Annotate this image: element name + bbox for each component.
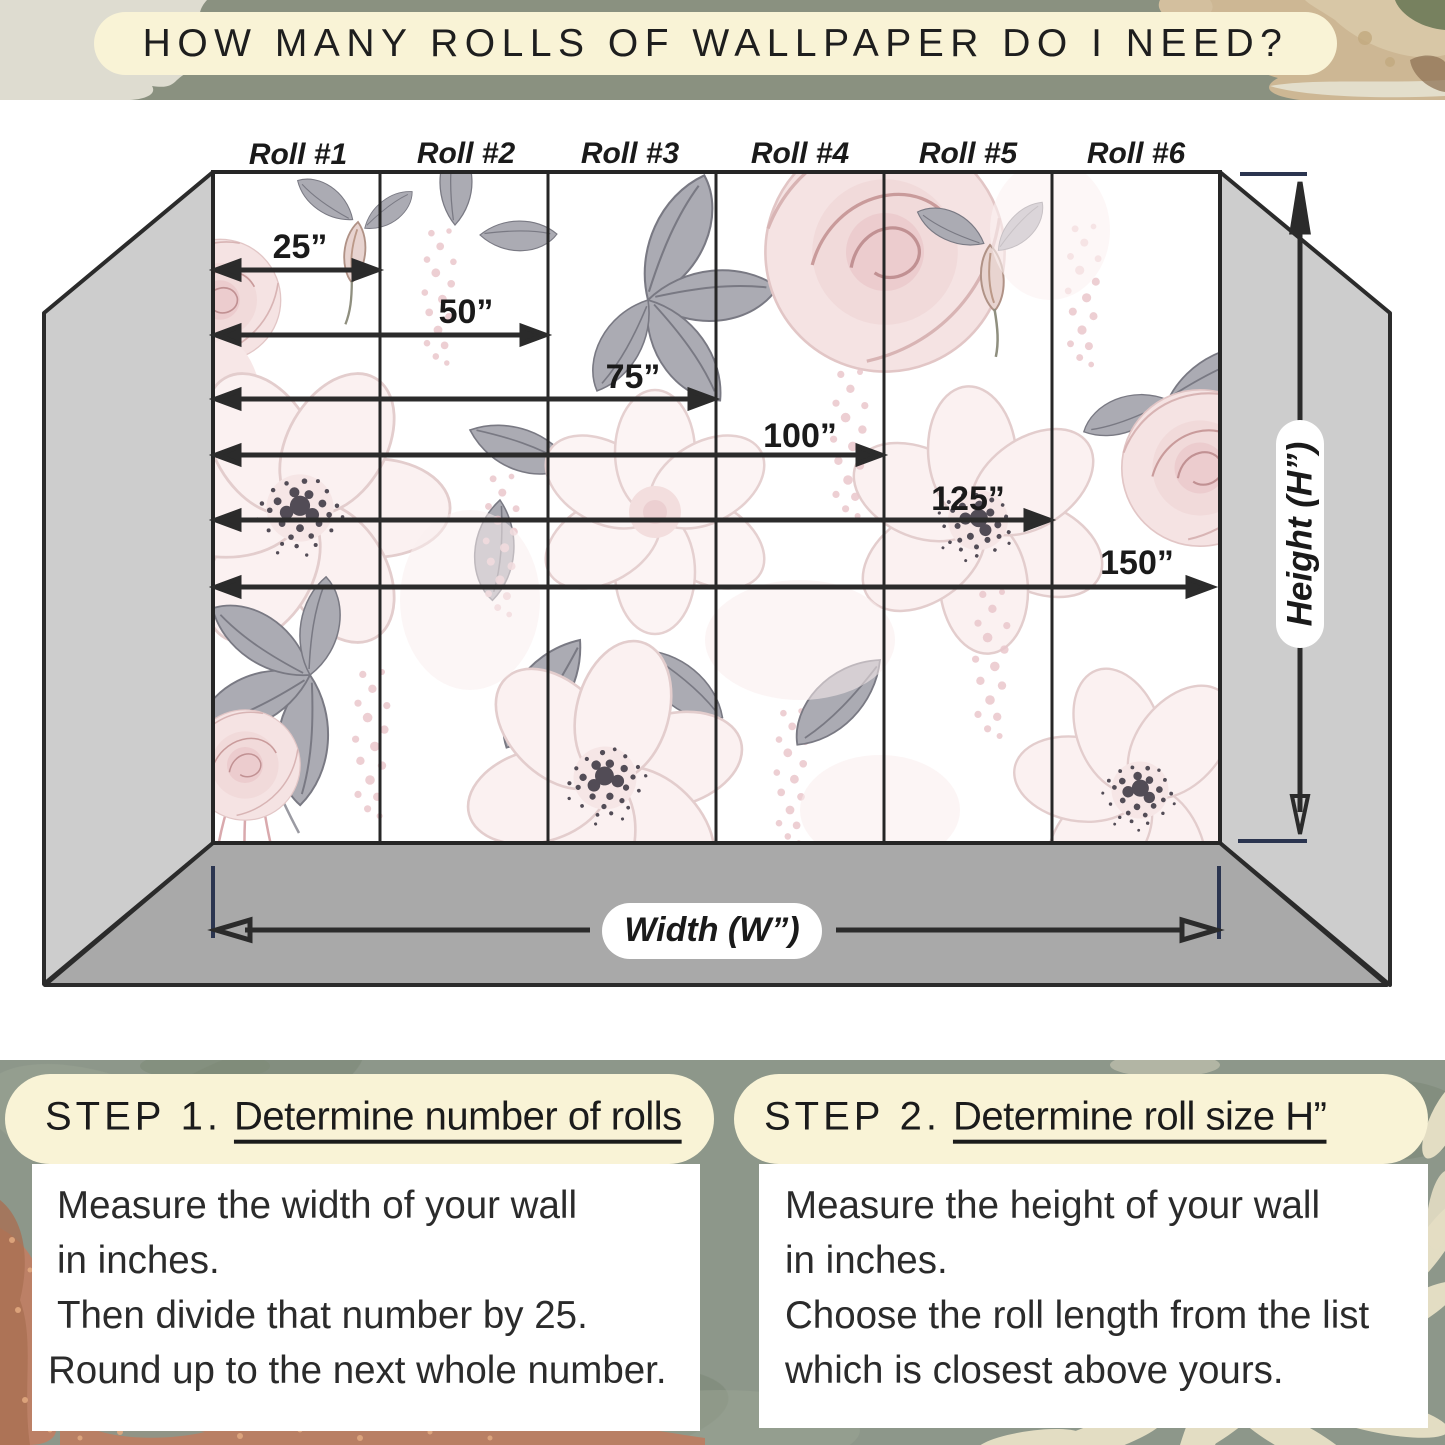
svg-text:Width (W”): Width (W”) (624, 911, 799, 949)
svg-text:Roll #2: Roll #2 (417, 137, 516, 170)
svg-text:Roll #3: Roll #3 (581, 137, 680, 170)
svg-text:Roll #5: Roll #5 (919, 137, 1019, 170)
svg-text:Height (H”): Height (H”) (1281, 442, 1320, 627)
svg-text:125”: 125” (931, 480, 1005, 518)
svg-text:50”: 50” (439, 293, 494, 331)
svg-text:Roll #4: Roll #4 (751, 137, 850, 170)
svg-text:75”: 75” (606, 358, 661, 396)
svg-text:150”: 150” (1100, 544, 1174, 582)
svg-text:25”: 25” (273, 228, 328, 266)
svg-text:100”: 100” (763, 417, 837, 455)
svg-text:Roll #6: Roll #6 (1087, 137, 1186, 170)
svg-text:Roll #1: Roll #1 (249, 138, 347, 171)
